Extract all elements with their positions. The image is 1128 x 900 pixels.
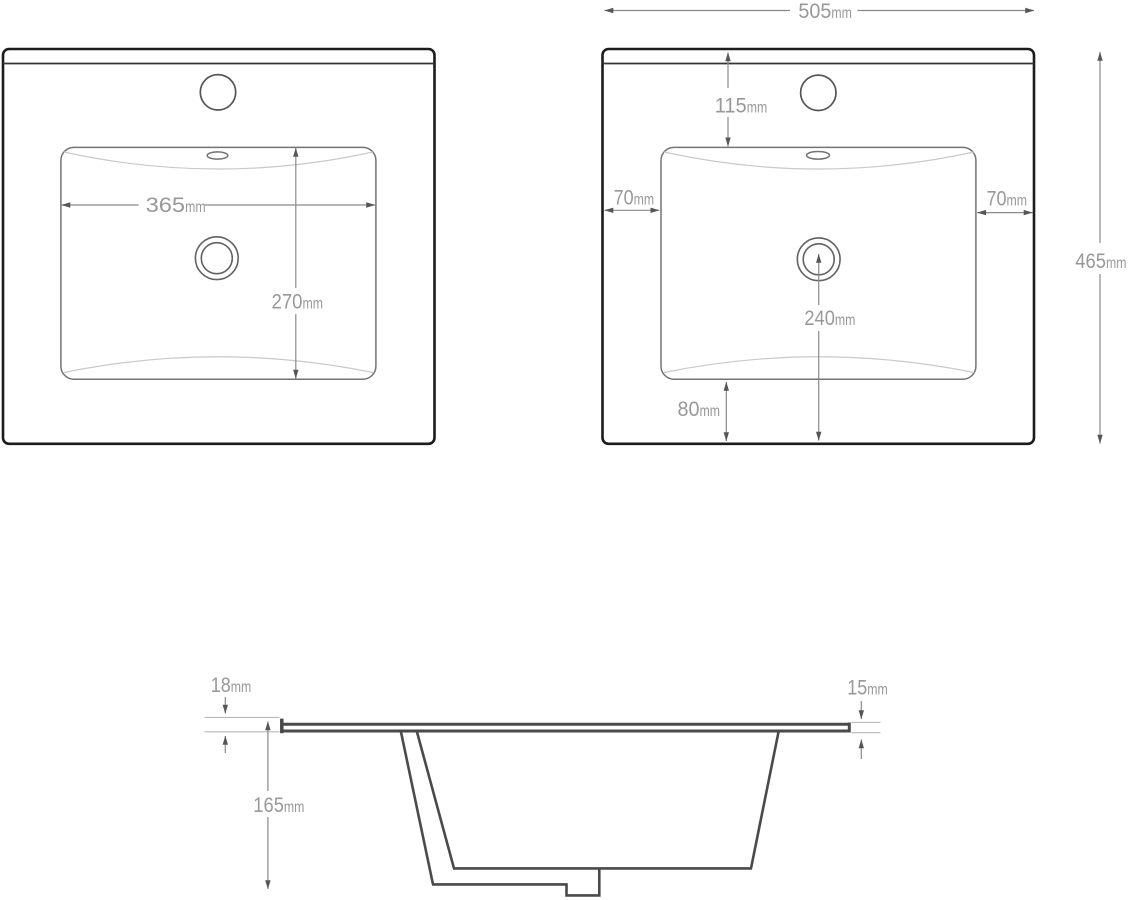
svg-text:18mm: 18mm — [211, 674, 252, 697]
svg-text:15mm: 15mm — [847, 677, 888, 700]
svg-text:70mm: 70mm — [987, 188, 1028, 211]
svg-text:80mm: 80mm — [678, 398, 721, 421]
svg-text:70mm: 70mm — [614, 187, 655, 210]
